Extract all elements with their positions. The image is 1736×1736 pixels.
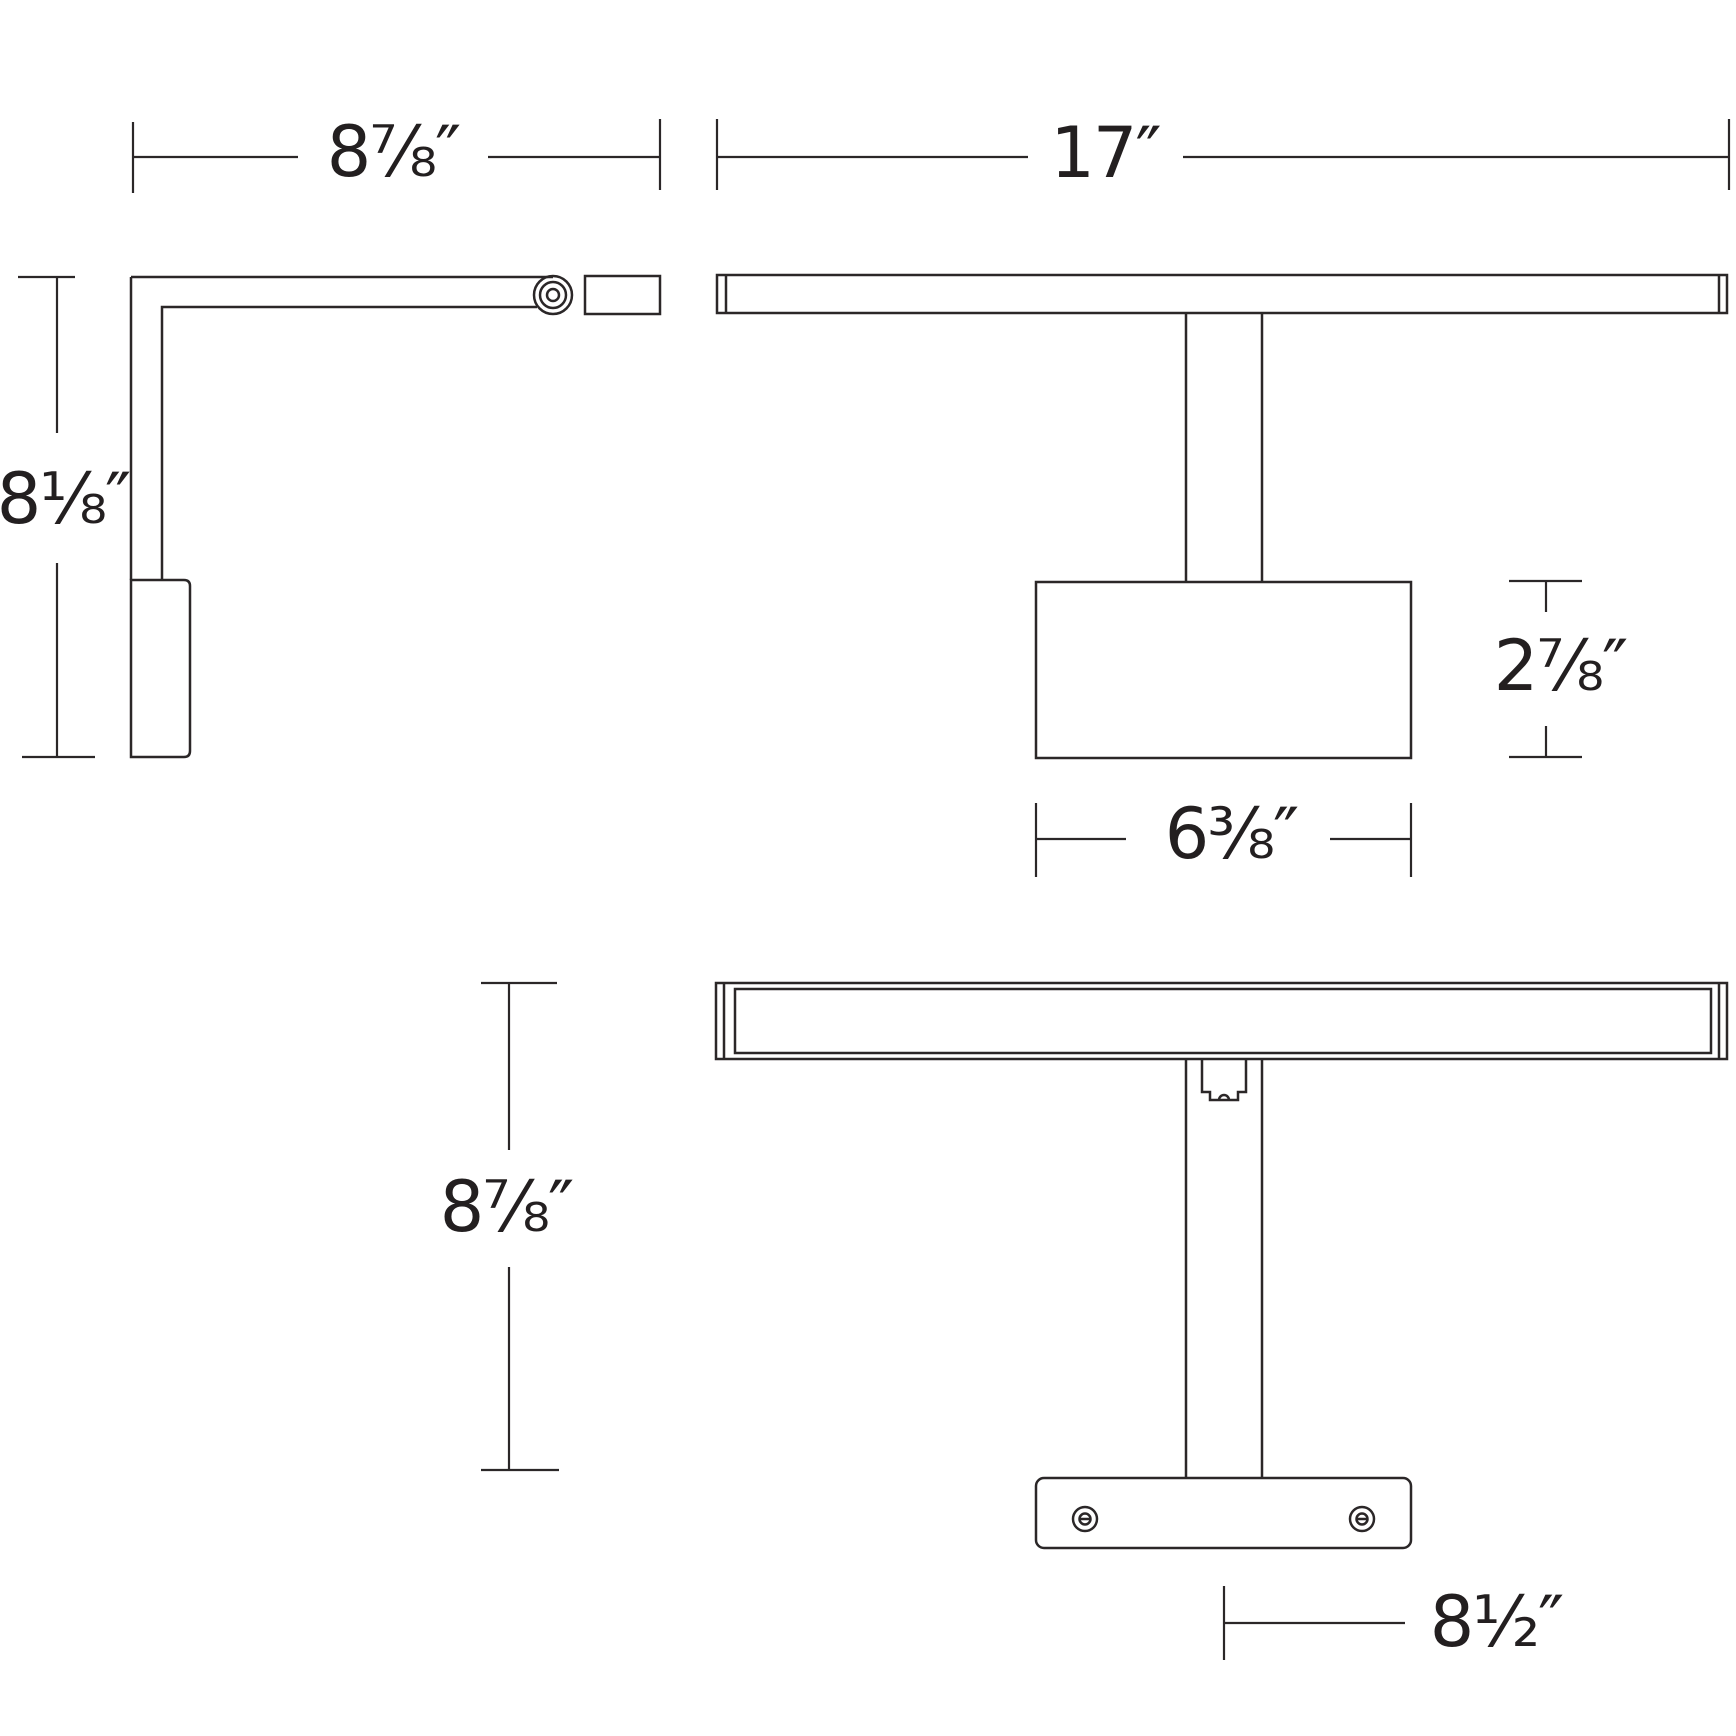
dimension-label-side-height: 8⅛″ <box>0 464 129 534</box>
hinge-icon <box>540 282 566 308</box>
light-bar-front <box>717 275 1727 313</box>
wall-plate <box>1036 1478 1411 1548</box>
wall-box-side <box>131 580 190 757</box>
linework <box>0 0 1736 1736</box>
dimension-front-width <box>717 119 1729 190</box>
backplate-front <box>1036 582 1411 758</box>
screw-icon <box>1073 1507 1097 1531</box>
dimension-label-top-depth: 8⅞″ <box>440 1172 573 1242</box>
arm-inner-edge <box>162 307 537 580</box>
top-view <box>716 983 1727 1548</box>
head-side-profile <box>585 276 660 314</box>
dimension-drawing: 8⅞″ 8⅛″ 17″ 2⅞″ 6⅜″ 8⅞″ 8½″ <box>0 0 1736 1736</box>
side-view <box>131 276 660 757</box>
dimension-label-backplate-height: 2⅞″ <box>1494 631 1627 701</box>
dimension-backplate-length <box>1224 1586 1405 1660</box>
dimension-label-side-width: 8⅞″ <box>327 117 460 187</box>
light-bar-top-outer <box>716 983 1727 1059</box>
dimension-label-backplate-length: 8½″ <box>1430 1587 1563 1657</box>
screw-icon <box>1350 1507 1374 1531</box>
dimension-label-backplate-width: 6⅜″ <box>1165 799 1298 869</box>
light-bar-top-inner <box>735 989 1711 1053</box>
dimension-label-front-width: 17″ <box>1050 118 1159 188</box>
